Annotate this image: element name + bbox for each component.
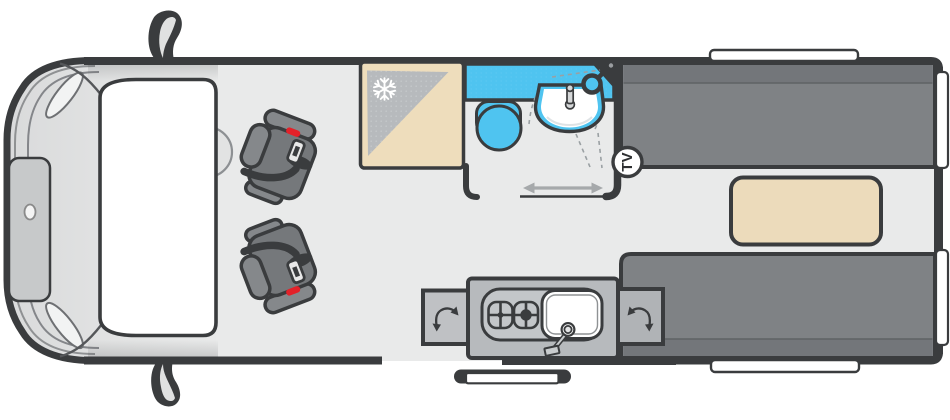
svg-text:TV: TV (619, 152, 636, 171)
